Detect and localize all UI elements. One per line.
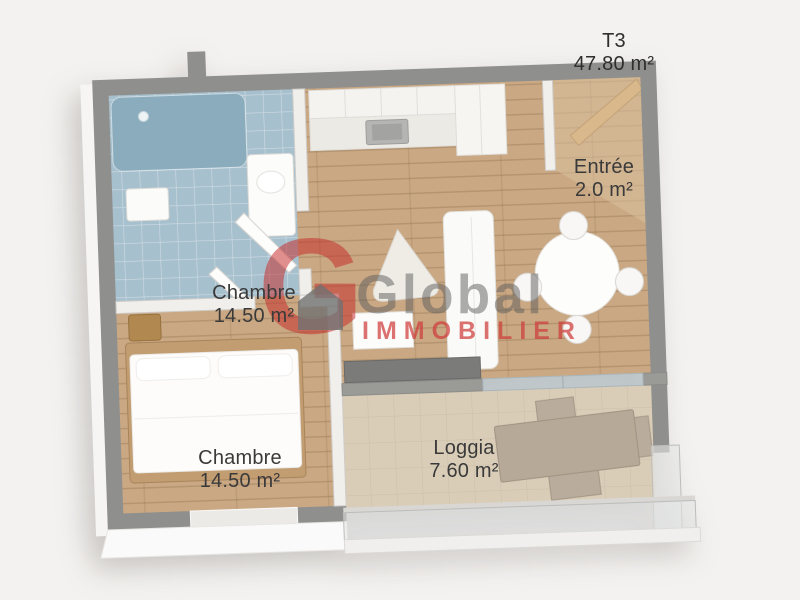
shower-drain-icon bbox=[138, 111, 148, 121]
room-area: 7.60 m² bbox=[429, 460, 498, 483]
sideboard bbox=[352, 311, 413, 349]
bed-pillow bbox=[136, 356, 211, 381]
kitchen-upper-cabinets bbox=[309, 86, 456, 119]
washing-machine bbox=[126, 188, 169, 221]
floorplan-svg bbox=[0, 0, 800, 600]
nightstand bbox=[128, 314, 161, 341]
room-name: Chambre bbox=[198, 447, 282, 470]
room-area: 14.50 m² bbox=[212, 305, 296, 328]
plan-type-label: T3 bbox=[574, 30, 655, 53]
room-name: Chambre bbox=[212, 282, 296, 305]
room-name: Loggia bbox=[429, 437, 498, 460]
dining-chair bbox=[513, 273, 542, 302]
sink-basin bbox=[256, 171, 285, 194]
room-area: 14.50 m² bbox=[198, 470, 282, 493]
room-label-loggia: Loggia 7.60 m² bbox=[429, 437, 498, 483]
room-name: Entrée bbox=[574, 156, 634, 179]
bathroom-door-threshold bbox=[297, 211, 311, 269]
dining-chair bbox=[615, 267, 644, 296]
loggia-wall-right-segment bbox=[643, 372, 667, 385]
bed-pillow bbox=[218, 353, 293, 378]
room-label-entree: Entrée 2.0 m² bbox=[574, 156, 634, 202]
bedroom-wall-right-segment bbox=[300, 294, 339, 307]
sofa bbox=[443, 210, 498, 370]
kitchen-sink-bowl bbox=[372, 123, 403, 140]
dining-chair bbox=[563, 315, 592, 344]
dining-chair bbox=[559, 211, 588, 240]
plan-total-area: 47.80 m² bbox=[574, 53, 655, 76]
room-label-chambre-main: Chambre 14.50 m² bbox=[212, 282, 296, 328]
plan-title: T3 47.80 m² bbox=[574, 30, 655, 76]
shower-tray bbox=[111, 93, 248, 172]
floorplan-3d-view bbox=[0, 0, 800, 600]
room-label-chambre-bottom: Chambre 14.50 m² bbox=[198, 447, 282, 493]
floorplan-image: G Global IMMOBILIER T3 47.80 m² Entrée 2… bbox=[0, 0, 800, 600]
room-area: 2.0 m² bbox=[574, 179, 634, 202]
tv-stand bbox=[344, 357, 481, 383]
